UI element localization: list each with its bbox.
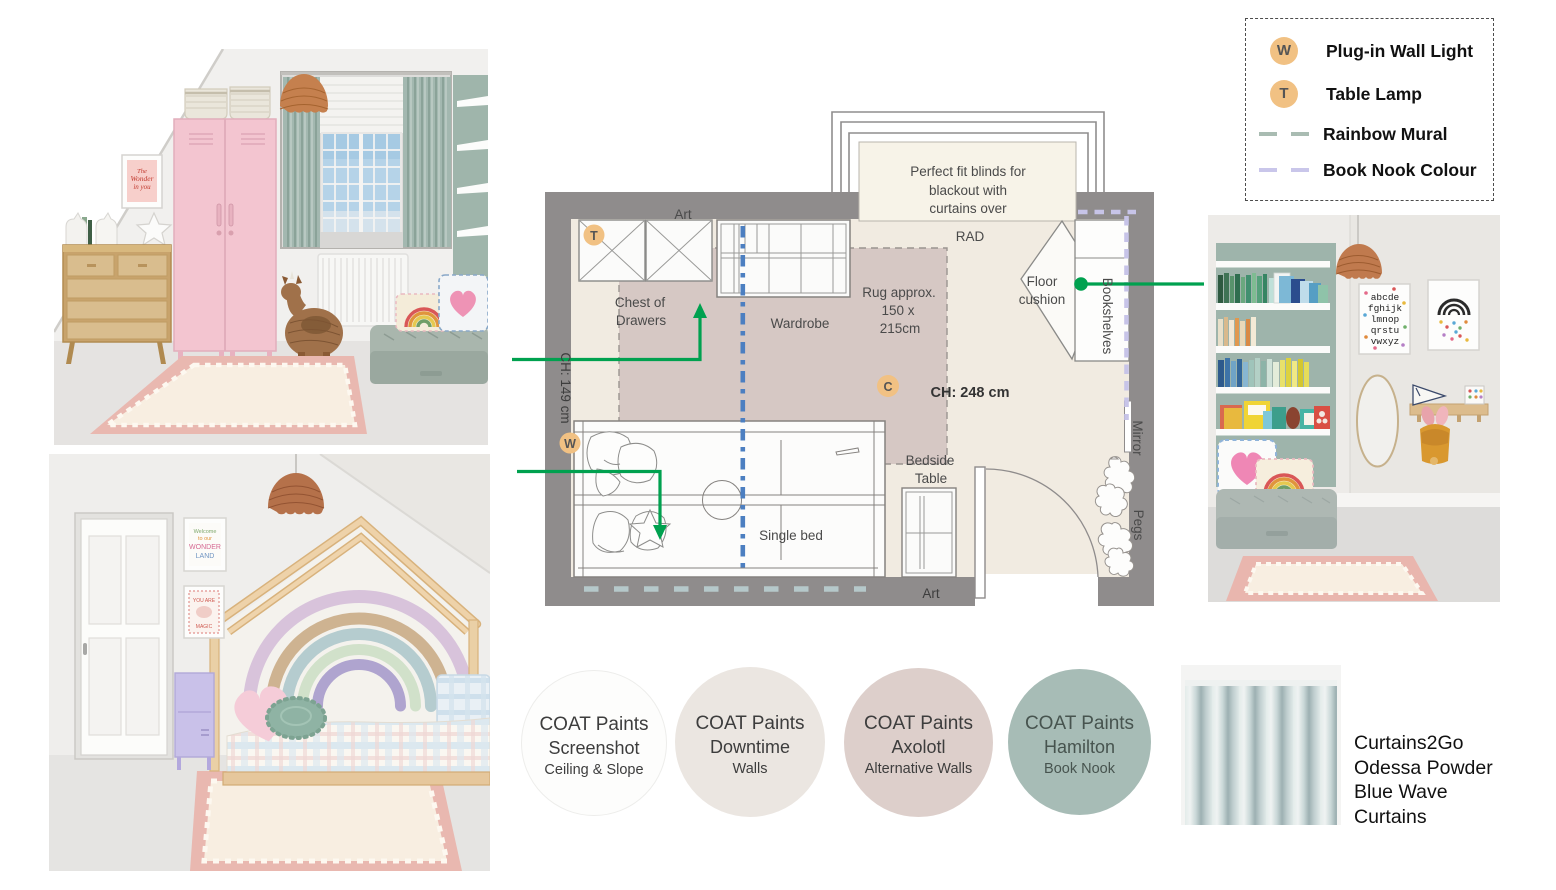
- svg-text:Bookshelves: Bookshelves: [1100, 278, 1115, 355]
- svg-text:C: C: [883, 380, 892, 394]
- svg-text:Perfect fit blinds for: Perfect fit blinds for: [910, 164, 1026, 179]
- svg-text:Rug approx.: Rug approx.: [862, 285, 936, 300]
- svg-text:LAND: LAND: [196, 553, 215, 560]
- svg-text:cushion: cushion: [1019, 292, 1066, 307]
- svg-text:Chest of: Chest of: [615, 295, 666, 310]
- svg-text:Welcome: Welcome: [194, 529, 217, 535]
- svg-text:T: T: [590, 229, 598, 243]
- svg-text:YOU ARE: YOU ARE: [193, 598, 216, 604]
- svg-text:Pegs: Pegs: [1131, 510, 1146, 541]
- svg-text:Mirror: Mirror: [1130, 420, 1145, 456]
- svg-text:WONDER: WONDER: [189, 544, 221, 551]
- svg-text:fghijk: fghijk: [1368, 303, 1403, 314]
- svg-text:Wonder: Wonder: [130, 174, 153, 183]
- svg-text:150 x: 150 x: [881, 303, 914, 318]
- svg-text:CH: 149 cm: CH: 149 cm: [558, 352, 573, 423]
- svg-text:W: W: [564, 437, 576, 451]
- svg-text:lmnop: lmnop: [1371, 314, 1400, 325]
- svg-text:Art: Art: [674, 207, 692, 222]
- svg-text:CH: 248 cm: CH: 248 cm: [931, 385, 1010, 401]
- svg-text:qrstu: qrstu: [1371, 325, 1400, 336]
- svg-text:Art: Art: [922, 586, 940, 601]
- svg-text:in you: in you: [133, 183, 151, 191]
- svg-text:Floor: Floor: [1027, 274, 1058, 289]
- svg-text:RAD: RAD: [956, 229, 985, 244]
- svg-text:vwxyz: vwxyz: [1371, 336, 1400, 347]
- svg-text:Single bed: Single bed: [759, 528, 823, 543]
- svg-text:to our: to our: [198, 536, 212, 542]
- svg-text:Wardrobe: Wardrobe: [771, 316, 830, 331]
- svg-text:curtains over: curtains over: [929, 201, 1007, 216]
- svg-text:Table: Table: [915, 471, 947, 486]
- svg-text:215cm: 215cm: [880, 321, 921, 336]
- svg-text:abcde: abcde: [1371, 292, 1400, 303]
- svg-text:MAGIC: MAGIC: [196, 624, 213, 630]
- svg-text:blackout with: blackout with: [929, 183, 1007, 198]
- svg-text:Bedside: Bedside: [906, 453, 955, 468]
- svg-text:Drawers: Drawers: [616, 313, 667, 328]
